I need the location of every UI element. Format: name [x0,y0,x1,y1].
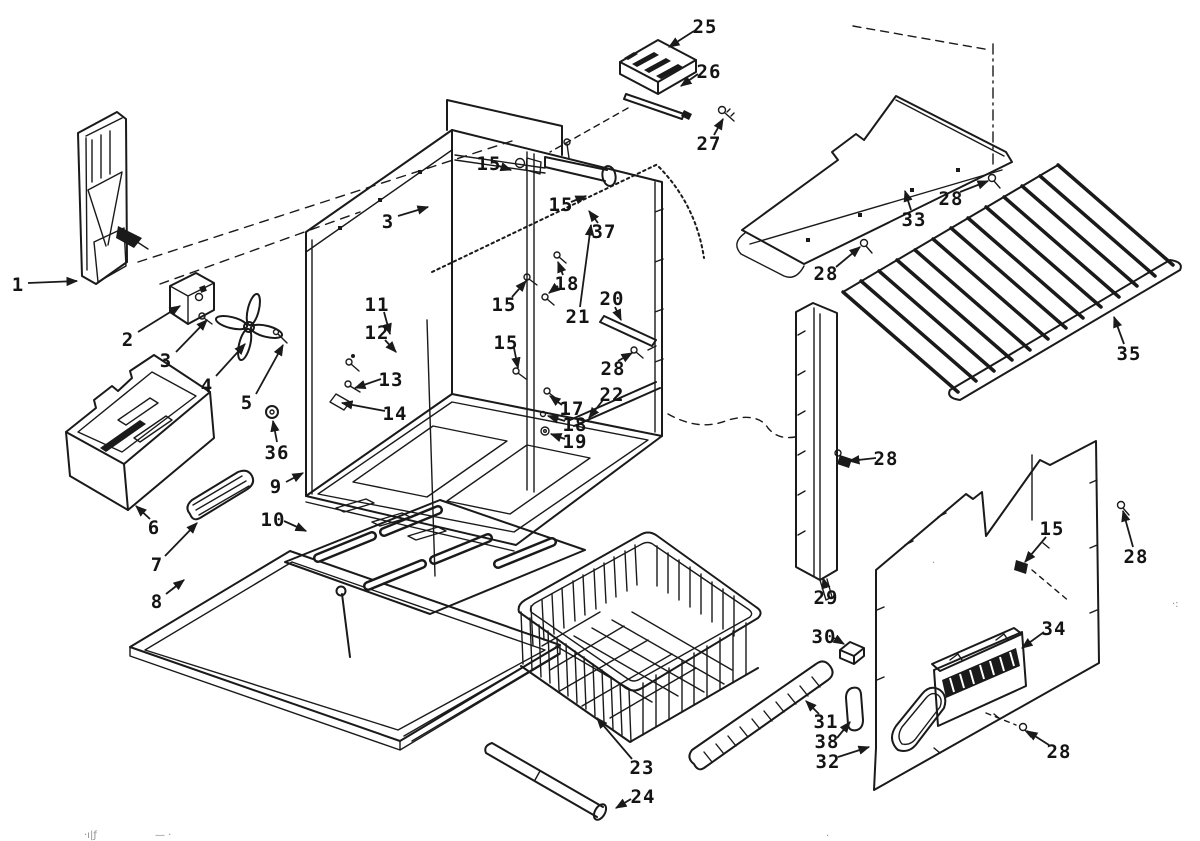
part-8-bottom-tray [130,551,560,750]
callout-label-28-40: 28 [1124,546,1149,568]
callout-label-9-9: 9 [270,476,282,498]
callout-label-19-26: 19 [563,431,588,453]
callout-label-3-2: 3 [160,350,172,372]
callout-label-28-38: 28 [874,448,899,470]
part-2-fan-motor [170,273,214,324]
part-24-tube [485,743,608,822]
callout-label-38-45: 38 [815,731,840,753]
leader-line-35 [1114,317,1124,344]
leader-line-28 [849,458,876,461]
callout-label-28-34: 28 [939,188,964,210]
leader-line-23 [597,718,632,759]
scanned-parts-diagram-page: 1234536678910111213143151515153718202117… [0,0,1200,841]
callout-label-15-18: 15 [492,294,517,316]
callout-label-24-30: 24 [631,786,656,808]
callout-label-32-46: 32 [816,751,841,773]
scan-artifact: ·ı|ƒ [84,830,97,841]
leader-line-21 [580,225,591,307]
callout-label-22-27: 22 [600,384,625,406]
callout-label-15-19: 15 [494,332,519,354]
leader-line-1 [28,281,77,283]
scan-artifact: · [826,831,829,841]
leader-line-24 [616,799,631,808]
callout-label-27-33: 27 [697,133,722,155]
callout-label-12-12: 12 [365,322,390,344]
callout-label-7-7: 7 [151,554,163,576]
callout-label-20-22: 20 [600,288,625,310]
callout-label-2-1: 2 [122,329,134,351]
part-25-lamp-housing [620,40,696,94]
leader-line-8 [166,580,184,594]
callout-label-3-15: 3 [382,211,394,233]
callout-label-5-4: 5 [241,392,253,414]
callout-label-35-37: 35 [1117,343,1142,365]
part-30-clip [840,642,864,664]
part-33-top-panel [737,96,1012,277]
callout-label-8-8: 8 [151,591,163,613]
leader-line-3 [398,207,428,216]
leader-line-10 [284,521,306,531]
callout-label-15-39: 15 [1040,518,1065,540]
part-36-grommet [266,406,278,418]
callout-label-15-17: 15 [549,194,574,216]
callout-label-6-6: 6 [148,517,160,539]
callout-label-36-5: 36 [265,442,290,464]
scan-artifact: ·: [1172,599,1179,610]
leader-line-28 [836,247,860,267]
callout-label-21-23: 21 [566,306,591,328]
callout-label-34-43: 34 [1042,618,1067,640]
callout-label-10-10: 10 [261,509,286,531]
callout-label-37-20: 37 [592,221,617,243]
callout-label-11-11: 11 [365,294,390,316]
leader-line-7 [165,523,197,556]
exploded-parts-diagram: 1234536678910111213143151515153718202117… [0,0,1200,841]
callout-label-28-36: 28 [814,263,839,285]
leader-line-36 [273,421,277,442]
callout-label-33-35: 33 [902,209,927,231]
part-29-vertical-rail [796,303,837,600]
callout-label-15-16: 15 [477,153,502,175]
callout-label-18-21: 18 [555,273,580,295]
callout-label-29-41: 29 [814,587,839,609]
scan-artifact: · [932,558,935,569]
leader-line-2 [138,306,180,332]
callout-label-28-47: 28 [1047,741,1072,763]
callout-label-23-29: 23 [630,757,655,779]
callout-label-28-28: 28 [601,358,626,380]
screws-28-right [1020,502,1130,738]
leader-line-32 [838,747,869,757]
part-1-air-duct-panel [78,112,148,284]
leader-line-25 [669,31,694,47]
leader-line-9 [286,473,303,482]
callout-label-1-0: 1 [12,274,24,296]
leader-line-33 [905,191,911,210]
part-32-rear-panel [874,441,1099,790]
part-26-bracket [624,94,692,120]
callout-label-26-32: 26 [697,61,722,83]
leader-line-13 [355,379,381,388]
callout-label-13-13: 13 [379,369,404,391]
part-6-storage-bin [66,355,214,510]
leader-line-5 [256,345,283,394]
part-7-ribbed-grip [187,471,253,520]
part-4-fan-blade [215,293,284,362]
leader-line-3 [176,320,207,352]
callout-label-25-31: 25 [693,16,718,38]
part-31-ribbed-trim [689,661,832,769]
leader-line-15 [1025,537,1046,562]
part-23-wire-basket [519,533,761,743]
part-27-screw [719,107,735,122]
scan-artifact: — · [155,830,171,841]
callout-label-14-14: 14 [383,403,408,425]
callout-label-30-42: 30 [812,626,837,648]
leader-line-14 [342,403,385,411]
callout-label-4-3: 4 [201,375,213,397]
callout-label-31-44: 31 [814,711,839,733]
leader-line-28 [1123,511,1133,547]
